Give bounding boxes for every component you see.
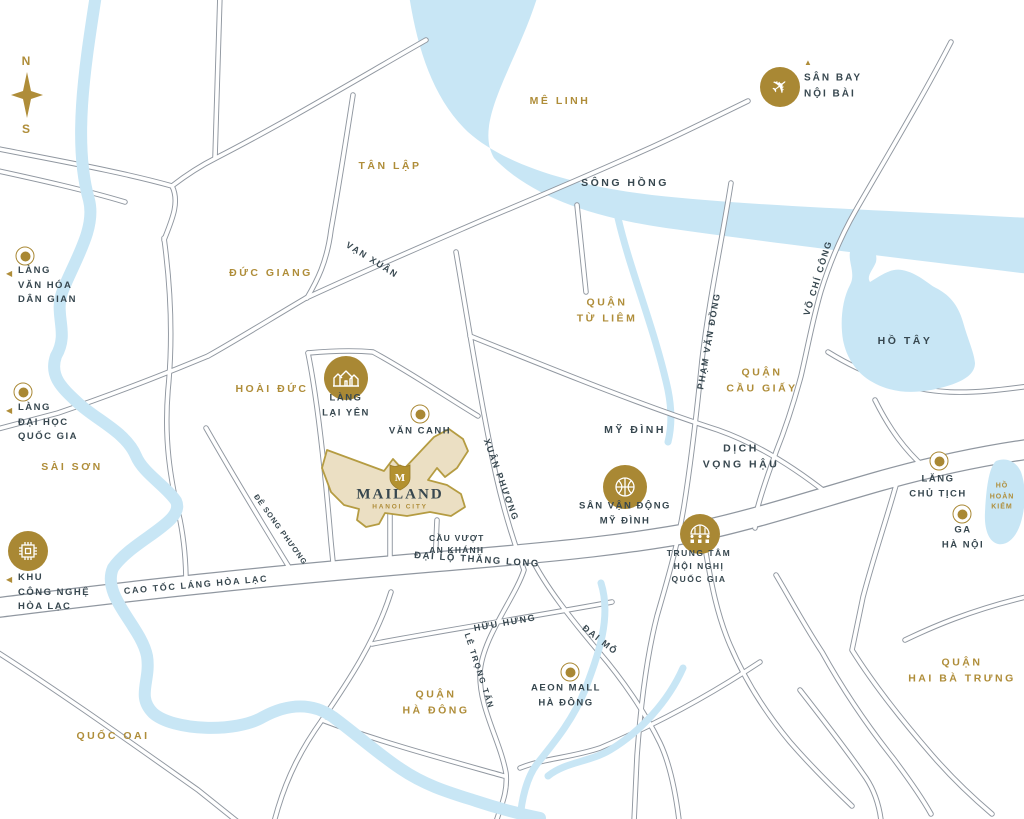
water-label-song-hong: SÔNG HỒNG: [581, 176, 669, 192]
area-label-quan-cau-giay: QUẬN CẦU GIẤY: [726, 365, 797, 397]
chip-icon: [8, 531, 48, 571]
ring-dot-icon: [16, 247, 35, 266]
poi-label-san-bay-noi-bai: SÂN BAY NỘI BÀI: [804, 71, 862, 102]
area-label-quan-ha-dong: QUẬN HÀ ĐÔNG: [402, 687, 469, 719]
airplane-icon: ✈: [760, 67, 800, 107]
poi-label-lang-lai-yen: LÀNG LẠI YÊN: [322, 391, 370, 420]
lang-van-hoa-marker-triangle: ◀: [6, 270, 12, 278]
compass-star-icon: [11, 72, 43, 118]
lang-dai-hoc-marker-triangle: ◀: [6, 407, 12, 415]
poi-label-khu-cong-nghe-hoa-lac: KHU CÔNG NGHỆ HÒA LẠC: [18, 571, 90, 615]
poi-label-lang-van-hoa-dan-gian: LÀNG VĂN HÓA DÂN GIAN: [18, 264, 77, 308]
poi-label-van-canh: VĂN CANH: [389, 425, 451, 440]
area-label-my-dinh: MỸ ĐÌNH: [604, 423, 666, 439]
map-canvas: [0, 0, 1024, 819]
area-label-sai-son: SÀI SƠN: [41, 460, 102, 476]
area-label-quoc-oai: QUỐC OAI: [76, 729, 149, 745]
ring-dot-icon: [930, 452, 949, 471]
area-label-tan-lap: TÂN LẬP: [359, 159, 422, 175]
area-label-quan-hai-ba-trung: QUẬN HAI BÀ TRƯNG: [908, 655, 1016, 687]
airport-marker-triangle: ▲: [804, 59, 812, 67]
poi-label-san-van-dong-my-dinh: SÂN VẬN ĐỘNG MỸ ĐÌNH: [579, 499, 671, 528]
mailand-logo-name: MAILAND: [356, 487, 443, 504]
area-label-quan-tu-liem: QUẬN TỪ LIÊM: [577, 295, 638, 327]
area-label-me-linh: MÊ LINH: [530, 94, 591, 110]
water-label-ho-hoan-kiem: HỒ HOÀN KIẾM: [990, 481, 1015, 513]
compass-south-label: S: [22, 122, 30, 136]
area-label-duc-giang: ĐỨC GIANG: [229, 266, 313, 282]
mailand-monogram: M: [395, 472, 406, 484]
khu-cong-nghe-marker-triangle: ◀: [6, 576, 12, 584]
poi-label-ga-ha-noi: GA HÀ NỘI: [942, 523, 984, 552]
compass-north-label: N: [22, 54, 31, 68]
ring-dot-icon: [953, 505, 972, 524]
poi-label-trung-tam-hoi-nghi-quoc-gia: TRUNG TÂM HỘI NGHỊ QUỐC GIA: [667, 547, 732, 587]
road-network-fill: [0, 0, 1024, 819]
hanoi-location-map: N S MÊ LINH TÂN LẬP ĐỨC GIANG QUẬN TỪ LI…: [0, 0, 1024, 819]
ring-dot-icon: [411, 405, 430, 424]
road-network-casing: [0, 0, 1024, 819]
water-label-ho-tay: HỒ TÂY: [878, 334, 933, 350]
ring-dot-icon: [14, 383, 33, 402]
area-label-dich-vong-hau: DỊCH VỌNG HẬU: [703, 441, 780, 473]
poi-label-aeon-mall-ha-dong: AEON MALL HÀ ĐÔNG: [531, 681, 601, 710]
area-label-hoai-duc: HOÀI ĐỨC: [235, 382, 308, 398]
road-label-cau-vuot-an-khanh: CẦU VƯỢT AN KHÁNH: [429, 533, 485, 557]
poi-label-lang-chu-tich: LĂNG CHỦ TỊCH: [909, 472, 966, 501]
mailand-logo-subtitle: HANOI CITY: [372, 504, 428, 511]
ring-dot-icon: [561, 663, 580, 682]
poi-label-lang-dai-hoc-quoc-gia: LÀNG ĐẠI HỌC QUỐC GIA: [18, 401, 78, 445]
